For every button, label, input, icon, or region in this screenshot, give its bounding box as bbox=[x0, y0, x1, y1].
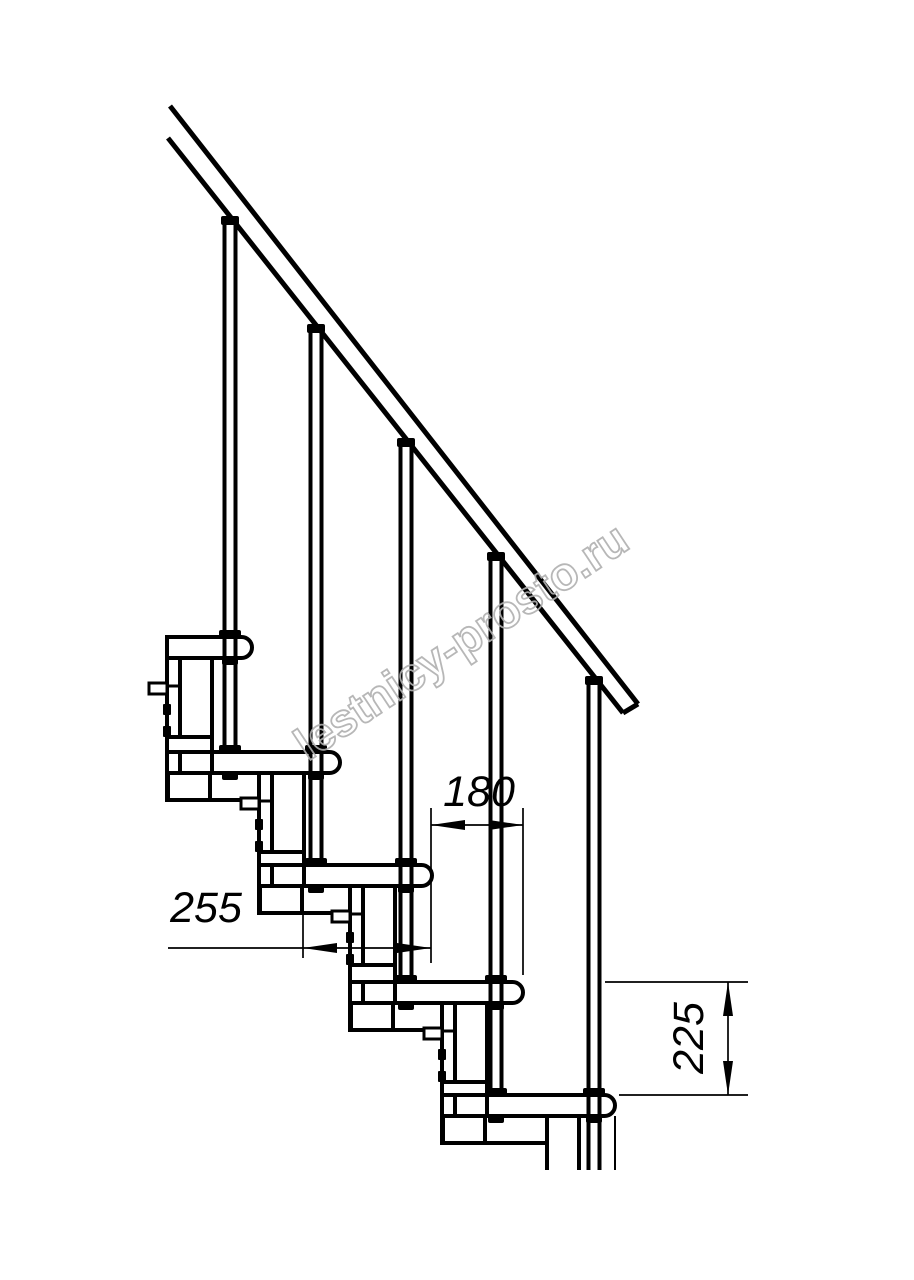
bolt bbox=[163, 726, 171, 737]
bolt bbox=[346, 954, 354, 965]
baluster-foot bbox=[583, 1088, 605, 1095]
baluster bbox=[219, 216, 241, 780]
support-column bbox=[180, 658, 212, 737]
side-tab bbox=[149, 683, 167, 694]
bolt bbox=[438, 1071, 446, 1082]
baluster-foot bbox=[219, 745, 241, 752]
dimension-arrow bbox=[723, 1061, 733, 1095]
dimension-arrow bbox=[489, 820, 523, 830]
handrail-edge bbox=[623, 704, 638, 713]
bolt bbox=[163, 704, 171, 715]
tread bbox=[487, 1095, 615, 1116]
dimension-180: 180 bbox=[431, 768, 523, 975]
support-module bbox=[149, 658, 272, 800]
baluster-nut bbox=[488, 1116, 504, 1123]
baluster-foot bbox=[485, 1088, 507, 1095]
side-tab bbox=[332, 911, 350, 922]
lower-module bbox=[547, 1116, 615, 1170]
bolt bbox=[346, 932, 354, 943]
baluster-foot bbox=[219, 630, 241, 637]
socket-box bbox=[351, 1003, 393, 1030]
bolt bbox=[255, 841, 263, 852]
baluster-nut bbox=[222, 658, 238, 665]
dimension-arrow bbox=[397, 943, 431, 953]
socket-box bbox=[260, 886, 302, 913]
tread bbox=[395, 982, 523, 1003]
side-tab bbox=[241, 798, 259, 809]
handrail bbox=[168, 106, 638, 713]
dimension-225: 225 bbox=[605, 982, 748, 1095]
column-flange bbox=[167, 737, 212, 752]
socket-box bbox=[443, 1116, 485, 1143]
dimension-label: 225 bbox=[665, 1001, 713, 1075]
technical-drawing-page: 180255225lestnicy-prosto.ru bbox=[0, 0, 914, 1280]
support-column bbox=[363, 886, 395, 965]
bolt bbox=[255, 819, 263, 830]
support-column bbox=[272, 773, 304, 852]
dimension-label: 180 bbox=[443, 768, 515, 816]
baluster-foot bbox=[395, 858, 417, 865]
baluster-nut bbox=[308, 773, 324, 780]
support-module bbox=[241, 773, 363, 913]
baluster-nut bbox=[222, 773, 238, 780]
baluster-foot bbox=[305, 858, 327, 865]
watermark-text: lestnicy-prosto.ru bbox=[285, 512, 638, 770]
baluster-foot bbox=[485, 975, 507, 982]
socket-box bbox=[168, 773, 210, 800]
baluster-nut bbox=[398, 1003, 414, 1010]
dimension-arrow bbox=[303, 943, 337, 953]
tread bbox=[167, 637, 252, 658]
baluster-nut bbox=[586, 1116, 602, 1123]
staircase-diagram: 180255225lestnicy-prosto.ru bbox=[0, 0, 914, 1280]
support-module bbox=[424, 1003, 547, 1143]
column-flange bbox=[259, 852, 304, 865]
dimension-label: 255 bbox=[169, 884, 243, 932]
baluster bbox=[305, 324, 327, 893]
baluster-nut bbox=[308, 886, 324, 893]
baluster-nut bbox=[488, 1003, 504, 1010]
baluster-nut bbox=[398, 886, 414, 893]
column-flange bbox=[350, 965, 395, 982]
handrail-edge bbox=[170, 106, 638, 704]
side-tab bbox=[424, 1028, 442, 1039]
baluster bbox=[395, 438, 417, 1010]
bolt bbox=[438, 1049, 446, 1060]
column-flange bbox=[442, 1082, 487, 1095]
dimension-arrow bbox=[431, 820, 465, 830]
support-column bbox=[455, 1003, 487, 1082]
support-module bbox=[332, 886, 455, 1030]
dimension-arrow bbox=[723, 982, 733, 1016]
baluster-foot bbox=[395, 975, 417, 982]
